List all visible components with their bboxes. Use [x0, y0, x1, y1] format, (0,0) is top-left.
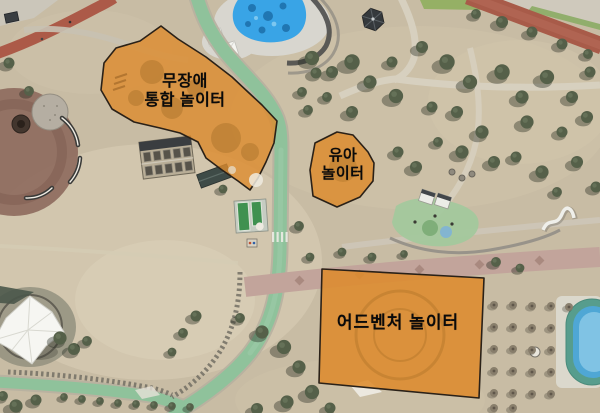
white-dome: [249, 173, 263, 187]
zone-label-line: 통합 놀이터: [104, 92, 266, 111]
zone-label-toddler-playground: 유아 놀이터: [293, 147, 393, 182]
kiosk: [247, 239, 257, 247]
zone-label-barrier-free-integrated-playground: 무장애 통합 놀이터: [104, 73, 266, 111]
green-roof-restroom: [234, 199, 268, 233]
zone-label-line: 무장애: [104, 73, 266, 92]
zone-label-adventure-playground: 어드벤처 놀이터: [302, 313, 494, 333]
zone-label-line: 어드벤처 놀이터: [302, 313, 494, 333]
park-aerial-map: 무장애 통합 놀이터 유아 놀이터 어드벤처 놀이터: [0, 0, 600, 413]
aerial-basemap: [0, 0, 600, 413]
pebble-mound: [32, 94, 68, 130]
grid-facade-building: [139, 136, 195, 179]
zone-label-line: 유아: [293, 147, 393, 165]
zone-label-line: 놀이터: [293, 165, 393, 183]
